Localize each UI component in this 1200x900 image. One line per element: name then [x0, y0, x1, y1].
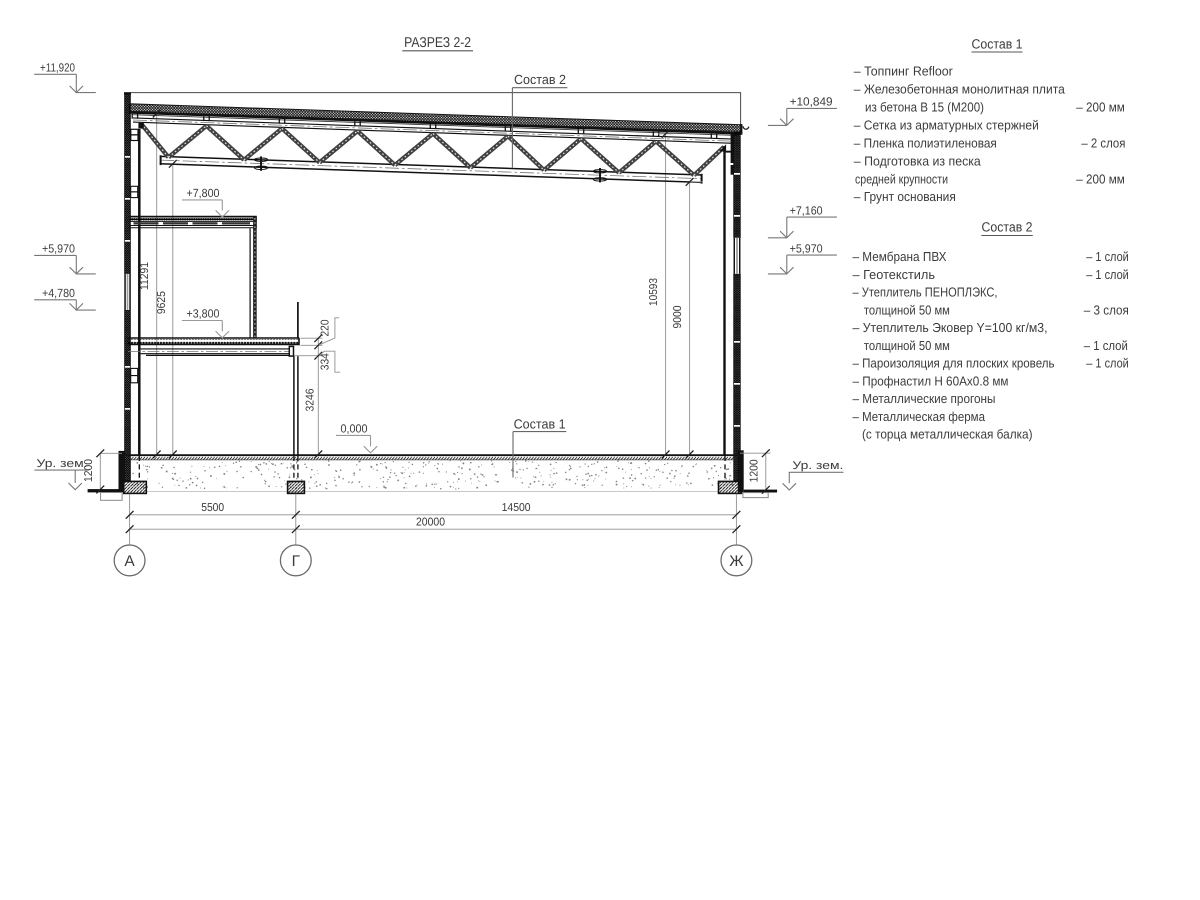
svg-text:– Утеплитель Эковер Y=100 кг/м: – Утеплитель Эковер Y=100 кг/м3, [853, 320, 1048, 335]
svg-text:+11,920: +11,920 [40, 61, 75, 75]
svg-text:+10,849: +10,849 [790, 95, 833, 109]
svg-text:11291: 11291 [139, 262, 151, 290]
svg-text:– Подготовка из песка: – Подготовка из песка [854, 153, 982, 168]
svg-text:РАЗРЕЗ 2-2: РАЗРЕЗ 2-2 [404, 35, 471, 51]
svg-text:– Пленка полиэтиленовая: – Пленка полиэтиленовая [854, 135, 997, 150]
svg-text:толщиной 50 мм: толщиной 50 мм [864, 338, 950, 353]
svg-text:– Мембрана ПВХ: – Мембрана ПВХ [853, 249, 947, 264]
svg-text:3246: 3246 [304, 389, 316, 412]
svg-text:– Топпинг Refloor: – Топпинг Refloor [854, 64, 954, 79]
svg-text:Ур. зем.: Ур. зем. [37, 458, 88, 470]
svg-text:– 1 слой: – 1 слой [1086, 249, 1129, 264]
svg-text:+7,800: +7,800 [187, 186, 220, 200]
svg-text:+7,160: +7,160 [790, 203, 823, 217]
svg-text:220: 220 [319, 320, 331, 337]
svg-text:14500: 14500 [502, 502, 531, 514]
svg-text:0,000: 0,000 [341, 422, 368, 436]
svg-text:+5,970: +5,970 [790, 241, 823, 255]
svg-text:– Геотекстиль: – Геотекстиль [853, 267, 936, 282]
svg-text:Состав 2: Состав 2 [514, 72, 566, 87]
svg-text:– 2 слоя: – 2 слоя [1081, 135, 1125, 150]
svg-text:+4,780: +4,780 [42, 286, 75, 300]
svg-text:– Профнастил Н 60Ах0.8 мм: – Профнастил Н 60Ах0.8 мм [853, 373, 1009, 388]
svg-text:– 3 слоя: – 3 слоя [1084, 302, 1129, 317]
svg-text:– 1 слой: – 1 слой [1084, 338, 1128, 353]
svg-text:– Железобетонная монолитная п: – Железобетонная монолитная плита [854, 82, 1066, 97]
svg-text:– 1 слой: – 1 слой [1086, 267, 1129, 282]
svg-text:1200: 1200 [748, 459, 760, 482]
svg-text:9000: 9000 [672, 306, 684, 329]
svg-text:– 1 слой: – 1 слой [1086, 356, 1129, 371]
svg-text:средней крупности: средней крупности [855, 171, 948, 186]
svg-text:Г: Г [292, 553, 301, 570]
svg-text:10593: 10593 [648, 278, 660, 306]
svg-text:+3,800: +3,800 [187, 307, 220, 321]
svg-text:– Сетка из арматурных стержней: – Сетка из арматурных стержней [854, 117, 1039, 132]
svg-text:(с торца металлическая балка): (с торца металлическая балка) [862, 427, 1033, 442]
svg-text:Ур. зем.: Ур. зем. [792, 460, 843, 472]
svg-text:+5,970: +5,970 [42, 242, 75, 256]
svg-text:– Утеплитель ПЕНОПЛЭКС,: – Утеплитель ПЕНОПЛЭКС, [853, 285, 998, 300]
svg-text:из бетона В 15 (М200): из бетона В 15 (М200) [865, 100, 984, 115]
svg-text:толщиной 50 мм: толщиной 50 мм [864, 302, 950, 317]
svg-text:334: 334 [320, 353, 332, 370]
svg-text:– Металлические прогоны: – Металлические прогоны [853, 391, 996, 406]
svg-text:– Пароизоляция для плоских кро: – Пароизоляция для плоских кровель [853, 356, 1055, 371]
svg-text:– Металлическая ферма: – Металлическая ферма [853, 409, 986, 424]
svg-text:Состав 1: Состав 1 [514, 417, 566, 432]
svg-text:20000: 20000 [416, 517, 445, 529]
svg-text:А: А [124, 553, 135, 570]
svg-text:– Грунт основания: – Грунт основания [854, 189, 956, 204]
svg-text:– 200 мм: – 200 мм [1076, 171, 1125, 186]
svg-text:Ж: Ж [729, 553, 744, 570]
svg-text:– 200 мм: – 200 мм [1076, 100, 1125, 115]
svg-text:Состав 1: Состав 1 [972, 36, 1023, 51]
svg-text:Состав 2: Состав 2 [982, 220, 1033, 235]
svg-text:9625: 9625 [156, 291, 168, 314]
svg-text:5500: 5500 [201, 502, 224, 514]
